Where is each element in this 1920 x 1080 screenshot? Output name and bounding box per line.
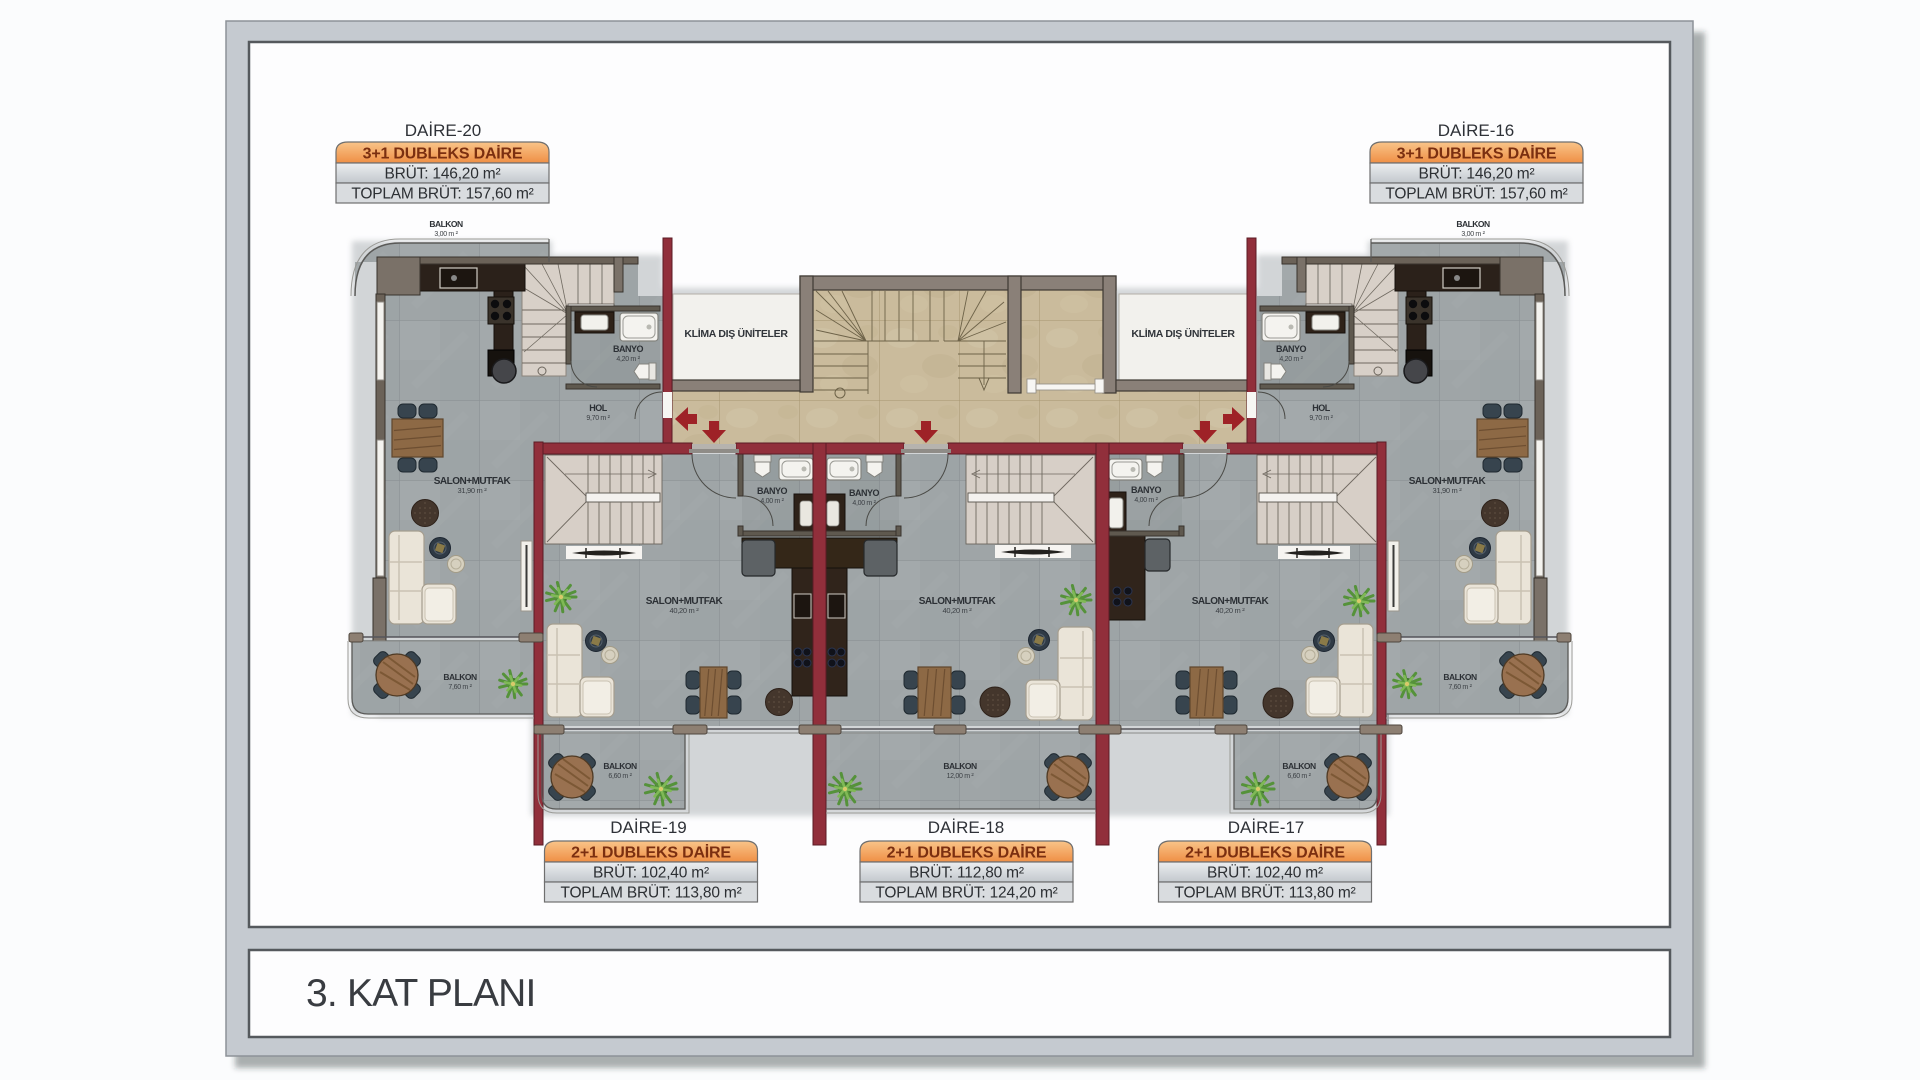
- svg-text:9,70 m ²: 9,70 m ²: [586, 415, 610, 422]
- svg-text:4,00 m ²: 4,00 m ²: [760, 498, 784, 505]
- svg-text:6,60 m ²: 6,60 m ²: [1287, 773, 1311, 780]
- svg-text:31,90 m ²: 31,90 m ²: [1433, 486, 1463, 495]
- svg-text:4,20 m ²: 4,20 m ²: [1279, 356, 1303, 363]
- svg-text:KLİMA DIŞ ÜNİTELER: KLİMA DIŞ ÜNİTELER: [684, 327, 788, 340]
- svg-text:2+1 DUBLEKS DAİRE: 2+1 DUBLEKS DAİRE: [571, 844, 731, 862]
- svg-text:BRÜT: 102,40 m²: BRÜT: 102,40 m²: [593, 864, 709, 882]
- svg-text:TOPLAM BRÜT: 113,80 m²: TOPLAM BRÜT: 113,80 m²: [1174, 884, 1355, 902]
- svg-text:HOL: HOL: [589, 403, 608, 413]
- svg-text:BRÜT: 146,20 m²: BRÜT: 146,20 m²: [1419, 165, 1535, 183]
- svg-text:BRÜT: 102,40 m²: BRÜT: 102,40 m²: [1207, 864, 1323, 882]
- svg-text:4,00 m ²: 4,00 m ²: [1134, 497, 1158, 504]
- svg-text:TOPLAM BRÜT: 157,60 m²: TOPLAM BRÜT: 157,60 m²: [1385, 185, 1567, 203]
- svg-text:BANYO: BANYO: [1276, 344, 1307, 354]
- svg-text:12,00 m ²: 12,00 m ²: [947, 773, 975, 780]
- svg-text:31,90 m ²: 31,90 m ²: [458, 486, 488, 495]
- svg-text:2+1 DUBLEKS DAİRE: 2+1 DUBLEKS DAİRE: [887, 844, 1047, 862]
- svg-text:BALKON: BALKON: [603, 761, 637, 771]
- svg-text:7,60 m ²: 7,60 m ²: [448, 684, 472, 691]
- svg-text:BALKON: BALKON: [1282, 761, 1316, 771]
- svg-text:TOPLAM BRÜT: 113,80 m²: TOPLAM BRÜT: 113,80 m²: [560, 884, 741, 902]
- svg-text:DAİRE-16: DAİRE-16: [1438, 121, 1515, 140]
- svg-text:40,20 m ²: 40,20 m ²: [1216, 606, 1246, 615]
- svg-text:BANYO: BANYO: [613, 344, 644, 354]
- svg-text:BALKON: BALKON: [1456, 219, 1490, 229]
- svg-text:DAİRE-17: DAİRE-17: [1228, 818, 1305, 837]
- svg-text:BANYO: BANYO: [1131, 485, 1162, 495]
- svg-text:3+1 DUBLEKS DAİRE: 3+1 DUBLEKS DAİRE: [363, 145, 523, 163]
- svg-text:TOPLAM BRÜT: 157,60 m²: TOPLAM BRÜT: 157,60 m²: [351, 185, 533, 203]
- svg-text:DAİRE-19: DAİRE-19: [610, 818, 687, 837]
- svg-text:3,00 m ²: 3,00 m ²: [1461, 231, 1485, 238]
- svg-text:KLİMA DIŞ ÜNİTELER: KLİMA DIŞ ÜNİTELER: [1131, 327, 1235, 340]
- svg-text:BRÜT: 112,80 m²: BRÜT: 112,80 m²: [909, 864, 1024, 882]
- svg-text:40,20 m ²: 40,20 m ²: [943, 606, 973, 615]
- svg-text:3+1 DUBLEKS DAİRE: 3+1 DUBLEKS DAİRE: [1397, 145, 1557, 163]
- svg-text:3. KAT PLANI: 3. KAT PLANI: [306, 972, 536, 1015]
- svg-text:BANYO: BANYO: [849, 488, 880, 498]
- svg-text:2+1 DUBLEKS DAİRE: 2+1 DUBLEKS DAİRE: [1185, 844, 1345, 862]
- svg-text:DAİRE-20: DAİRE-20: [405, 121, 482, 140]
- svg-text:3,00 m ²: 3,00 m ²: [434, 231, 458, 238]
- svg-text:BALKON: BALKON: [443, 672, 477, 682]
- svg-text:TOPLAM BRÜT: 124,20 m²: TOPLAM BRÜT: 124,20 m²: [875, 884, 1057, 902]
- svg-text:BRÜT: 146,20 m²: BRÜT: 146,20 m²: [385, 165, 501, 183]
- svg-text:BALKON: BALKON: [429, 219, 463, 229]
- svg-text:HOL: HOL: [1312, 403, 1331, 413]
- svg-text:DAİRE-18: DAİRE-18: [928, 818, 1005, 837]
- svg-text:BALKON: BALKON: [943, 761, 977, 771]
- svg-text:BALKON: BALKON: [1443, 672, 1477, 682]
- svg-text:4,00 m ²: 4,00 m ²: [852, 500, 876, 507]
- svg-text:6,60 m ²: 6,60 m ²: [608, 773, 632, 780]
- svg-text:4,20 m ²: 4,20 m ²: [616, 356, 640, 363]
- svg-text:40,20 m ²: 40,20 m ²: [670, 606, 700, 615]
- svg-text:9,70 m ²: 9,70 m ²: [1309, 415, 1333, 422]
- svg-text:7,60 m ²: 7,60 m ²: [1448, 684, 1472, 691]
- svg-text:BANYO: BANYO: [757, 486, 788, 496]
